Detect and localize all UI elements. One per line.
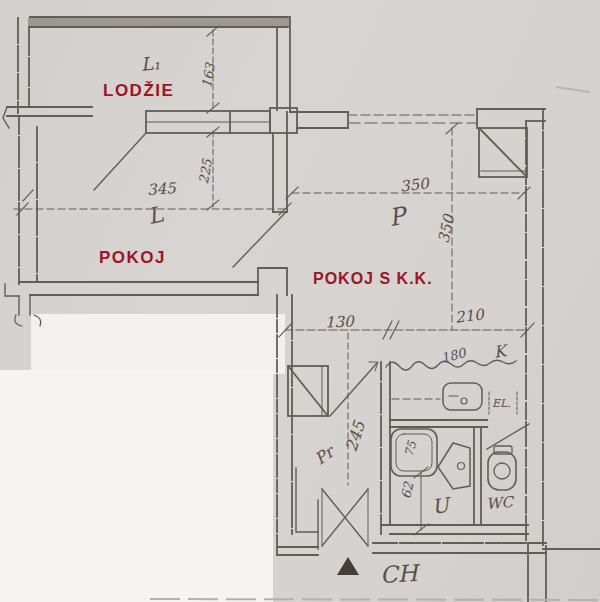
floor-plan-scan: LODŽIE POKOJ POKOJ S K.K. L₁ L P Pr U WC… [0, 0, 600, 602]
scan-mark [556, 87, 590, 92]
room-code-bath: U [430, 493, 450, 519]
room-code-wc: WC [485, 493, 513, 513]
dim-hall-width: 130 [325, 313, 354, 332]
scan-bottom-edge [150, 599, 600, 600]
dim-pokoj-width: 345 [146, 179, 176, 199]
room-code-corridor: CH [379, 560, 418, 588]
scan-white-patch [31, 314, 285, 374]
kitchen-counter-code: K [493, 341, 507, 361]
dim-kitchen-width: 210 [454, 305, 485, 326]
scan-white-patch [0, 370, 273, 602]
electrical-note: EL. [492, 397, 511, 410]
room-code-loggia: L₁ [140, 52, 161, 75]
entrance-triangle-marker [337, 557, 359, 575]
dim-room-width: 350 [399, 174, 430, 195]
room-label-pokoj-s-kk: POKOJ S K.K. [313, 270, 433, 288]
room-label-pokoj: POKOJ [99, 248, 166, 268]
room-label-lodzie: LODŽIE [103, 81, 174, 101]
floorplan-walls-drawing [0, 0, 600, 602]
